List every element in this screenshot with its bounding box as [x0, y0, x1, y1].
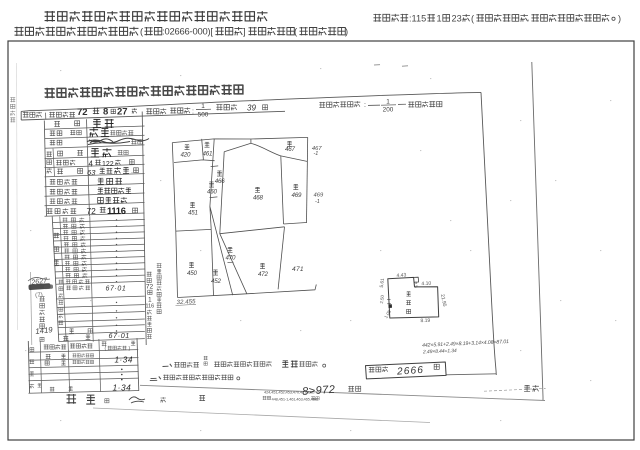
svg-text:461: 461	[203, 151, 213, 158]
svg-text:): )	[129, 346, 131, 352]
svg-text:122: 122	[102, 161, 114, 168]
svg-text:469: 469	[314, 193, 324, 199]
svg-text:469: 469	[292, 192, 302, 199]
svg-text:39: 39	[247, 103, 256, 112]
svg-text:67·01: 67·01	[109, 331, 130, 340]
svg-text:451: 451	[188, 210, 198, 217]
svg-text:420: 420	[181, 152, 191, 159]
svg-text:1419: 1419	[35, 325, 54, 336]
svg-text:200: 200	[383, 106, 394, 113]
svg-text:63: 63	[87, 168, 96, 177]
svg-text:-1: -1	[315, 199, 320, 205]
svg-text:8>972: 8>972	[302, 384, 336, 398]
svg-text:500: 500	[198, 111, 209, 118]
svg-text:(: (	[471, 13, 474, 23]
svg-text:8: 8	[103, 107, 108, 118]
svg-text:72: 72	[146, 284, 154, 291]
svg-text:1: 1	[201, 103, 205, 110]
svg-text:(7): (7)	[35, 291, 43, 299]
svg-text:1: 1	[437, 14, 442, 24]
svg-text:4.43: 4.43	[396, 272, 406, 279]
svg-text:8.19: 8.19	[420, 318, 430, 324]
svg-text:1: 1	[386, 98, 390, 105]
svg-text:1·34: 1·34	[115, 356, 133, 365]
svg-text:466: 466	[215, 178, 225, 185]
svg-text::02666-000)[: :02666-000)[	[162, 26, 213, 37]
svg-text:72: 72	[87, 206, 97, 216]
svg-text:23: 23	[452, 14, 462, 24]
svg-text:4.10: 4.10	[421, 281, 431, 288]
svg-text:116: 116	[146, 304, 155, 310]
svg-text:5.61: 5.61	[379, 278, 386, 288]
svg-text:]: ]	[243, 26, 246, 37]
svg-text:452: 452	[211, 278, 221, 285]
svg-text::: :	[192, 108, 194, 115]
svg-text:471: 471	[292, 266, 304, 273]
svg-text::115: :115	[409, 14, 426, 24]
svg-text:1·34: 1·34	[113, 383, 132, 393]
svg-text:1116: 1116	[107, 205, 126, 216]
svg-text:-1: -1	[314, 151, 319, 157]
svg-text:460: 460	[207, 188, 217, 195]
svg-text:1: 1	[148, 296, 152, 303]
svg-text:67·01: 67·01	[106, 285, 127, 292]
svg-text:(: (	[105, 346, 107, 352]
svg-text:468: 468	[253, 195, 263, 202]
svg-text:): )	[345, 26, 348, 37]
svg-text:2666: 2666	[396, 365, 425, 378]
svg-text:72: 72	[77, 107, 88, 118]
svg-text:27: 27	[117, 106, 128, 117]
svg-text:·: ·	[131, 170, 133, 176]
svg-text:): )	[618, 13, 621, 23]
svg-text:472: 472	[258, 271, 268, 278]
svg-text::: :	[364, 102, 366, 109]
svg-text:470: 470	[226, 255, 236, 262]
svg-text:467: 467	[285, 146, 295, 153]
svg-text:450: 450	[187, 270, 197, 277]
svg-text:,: ,	[527, 14, 529, 23]
